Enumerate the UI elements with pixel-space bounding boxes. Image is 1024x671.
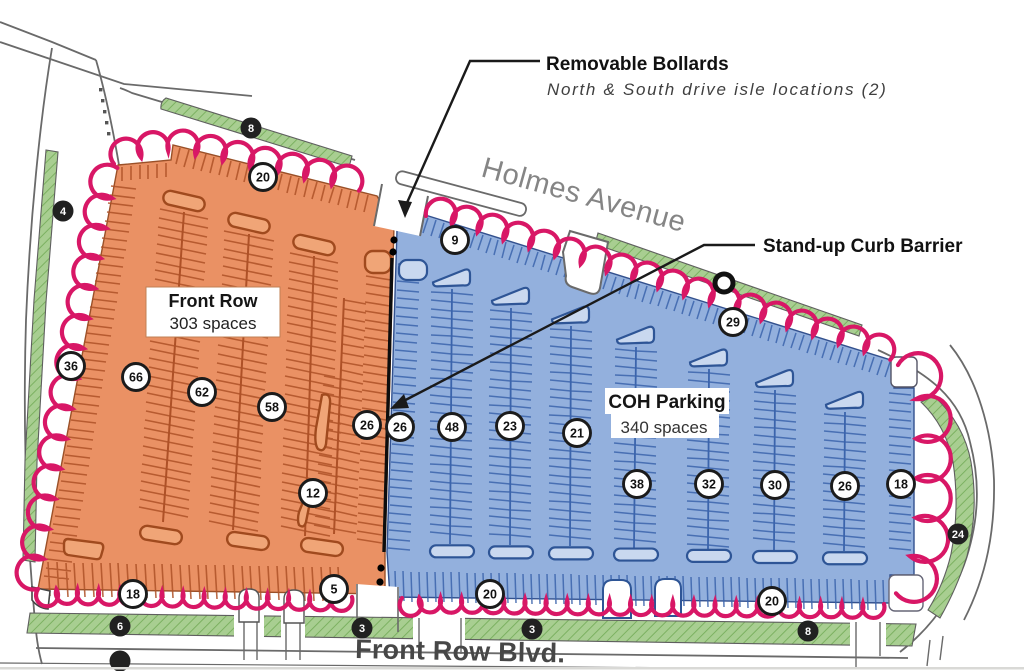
svg-text:58: 58 bbox=[265, 401, 279, 415]
svg-text:8: 8 bbox=[805, 626, 811, 638]
svg-text:24: 24 bbox=[952, 529, 965, 541]
svg-text:32: 32 bbox=[702, 478, 716, 492]
svg-text:Removable Bollards: Removable Bollards bbox=[546, 54, 729, 75]
svg-text:9: 9 bbox=[452, 234, 459, 248]
svg-text:20: 20 bbox=[483, 588, 497, 602]
svg-text:5: 5 bbox=[331, 583, 338, 597]
svg-text:3: 3 bbox=[529, 624, 535, 636]
svg-text:340 spaces: 340 spaces bbox=[621, 418, 708, 437]
svg-text:303 spaces: 303 spaces bbox=[170, 314, 257, 333]
svg-text:Stand-up Curb Barrier: Stand-up Curb Barrier bbox=[763, 236, 963, 257]
svg-text:8: 8 bbox=[248, 123, 254, 135]
svg-text:6: 6 bbox=[117, 621, 123, 633]
svg-text:North & South drive isle locat: North & South drive isle locations (2) bbox=[547, 80, 888, 99]
svg-text:COH Parking: COH Parking bbox=[608, 392, 725, 413]
svg-text:66: 66 bbox=[129, 371, 143, 385]
svg-text:29: 29 bbox=[726, 316, 740, 330]
svg-text:36: 36 bbox=[64, 360, 78, 374]
svg-text:18: 18 bbox=[894, 478, 908, 492]
svg-text:62: 62 bbox=[195, 386, 209, 400]
svg-text:4: 4 bbox=[60, 206, 67, 218]
svg-text:48: 48 bbox=[445, 421, 459, 435]
svg-text:30: 30 bbox=[768, 479, 782, 493]
svg-text:Front Row: Front Row bbox=[169, 291, 259, 311]
svg-text:18: 18 bbox=[126, 588, 140, 602]
svg-text:20: 20 bbox=[256, 171, 270, 185]
svg-text:38: 38 bbox=[630, 478, 644, 492]
svg-text:3: 3 bbox=[359, 623, 365, 635]
svg-text:26: 26 bbox=[393, 421, 407, 435]
svg-text:26: 26 bbox=[838, 480, 852, 494]
svg-text:12: 12 bbox=[306, 487, 320, 501]
svg-text:20: 20 bbox=[765, 595, 779, 609]
svg-text:21: 21 bbox=[570, 427, 584, 441]
svg-text:23: 23 bbox=[503, 420, 517, 434]
svg-text:26: 26 bbox=[360, 419, 374, 433]
